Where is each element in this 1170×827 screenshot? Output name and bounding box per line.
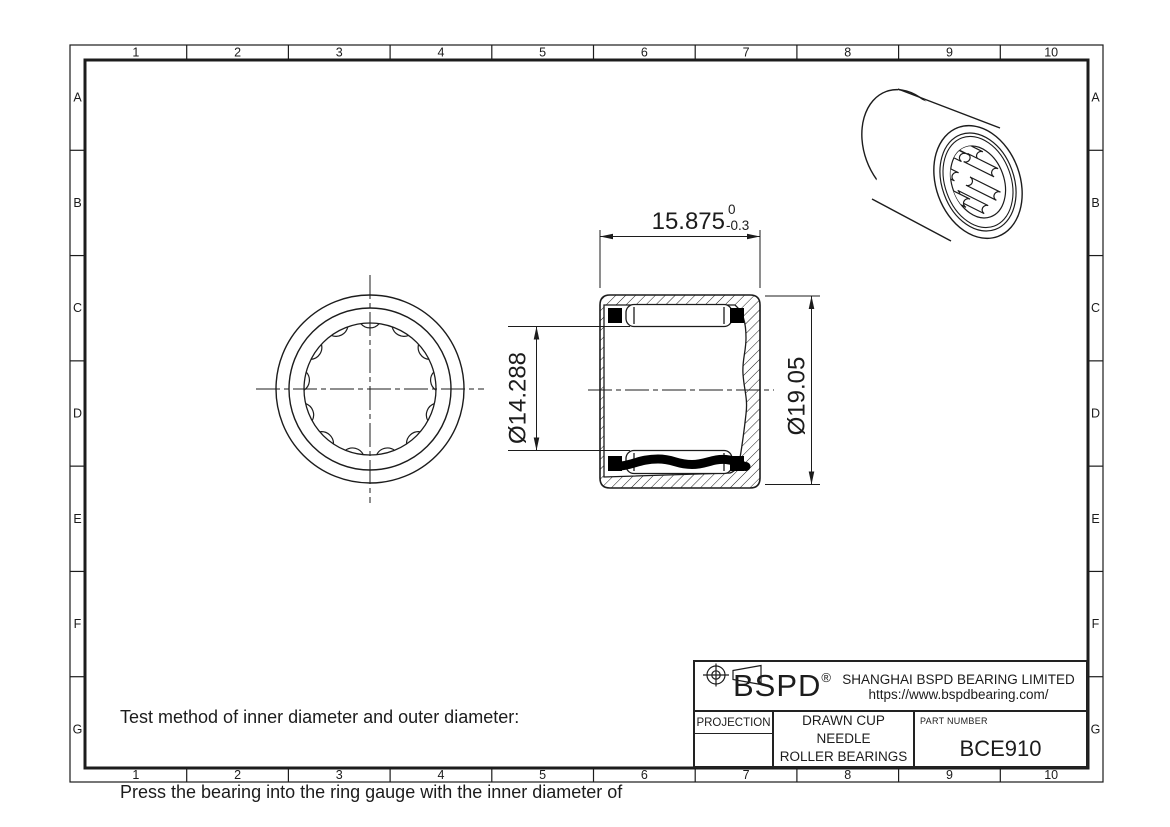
grid-row-label: C (73, 301, 82, 315)
registered-mark: ® (821, 670, 831, 685)
drawing-sheet: 1122334455667788991010AABBCCDDEEFFGG (0, 0, 1170, 827)
company-website: https://www.bspdbearing.com/ (831, 687, 1086, 702)
grid-column-label: 6 (641, 46, 648, 60)
title-block-body: PROJECTION DRAWN CUP NEEDLE ROLLER BEARI… (695, 712, 1086, 766)
grid-row-label: G (1091, 722, 1101, 736)
grid-column-label: 8 (844, 46, 851, 60)
product-title-line1: DRAWN CUP NEEDLE (774, 712, 913, 748)
front-view (256, 275, 484, 503)
test-method-note: Test method of inner diameter and outer … (120, 655, 720, 827)
title-block: BSPD® SHANGHAI BSPD BEARING LIMITED http… (693, 660, 1088, 768)
dimension-width (600, 230, 760, 288)
grid-row-label: D (73, 407, 82, 421)
grid-column-label: 7 (743, 768, 750, 782)
part-number-cell: PART NUMBER BCE910 (915, 712, 1086, 766)
grid-column-label: 9 (946, 768, 953, 782)
grid-column-label: 9 (946, 46, 953, 60)
grid-column-label: 4 (437, 46, 444, 60)
company-info: SHANGHAI BSPD BEARING LIMITED https://ww… (831, 670, 1086, 702)
grid-row-label: F (1092, 617, 1100, 631)
dimension-width-value: 15.875 (652, 208, 725, 235)
grid-column-label: 2 (234, 46, 241, 60)
dimension-width-tol-upper: 0 (728, 202, 736, 217)
product-title-line2: ROLLER BEARINGS (780, 748, 908, 766)
grid-row-label: D (1091, 407, 1100, 421)
dimension-inner-diameter-value: Ø14.288 (504, 352, 531, 444)
product-title-cell: DRAWN CUP NEEDLE ROLLER BEARINGS (774, 712, 915, 766)
grid-row-label: B (1091, 196, 1099, 210)
note-line: Press the bearing into the ring gauge wi… (120, 780, 720, 805)
dimension-outer-diameter-value: Ø19.05 (783, 357, 810, 436)
grid-column-label: 1 (132, 46, 139, 60)
grid-row-label: E (73, 512, 81, 526)
part-number-label: PART NUMBER (920, 716, 988, 726)
note-line: Test method of inner diameter and outer … (120, 705, 720, 730)
needle-roller-top (626, 305, 732, 327)
first-angle-projection-icon (695, 662, 767, 688)
section-view (588, 295, 774, 488)
projection-symbol-area (695, 734, 772, 766)
grid-column-label: 10 (1044, 46, 1058, 60)
part-number-value: BCE910 (915, 736, 1086, 762)
grid-row-label: F (74, 617, 82, 631)
grid-row-label: A (73, 91, 82, 105)
grid-column-label: 7 (743, 46, 750, 60)
isometric-view (847, 77, 1038, 251)
projection-cell: PROJECTION (695, 712, 774, 766)
grid-column-label: 3 (336, 46, 343, 60)
company-name: SHANGHAI BSPD BEARING LIMITED (831, 672, 1086, 687)
grid-row-label: G (73, 722, 83, 736)
grid-column-label: 5 (539, 46, 546, 60)
grid-column-label: 10 (1044, 768, 1058, 782)
grid-column-label: 8 (844, 768, 851, 782)
grid-row-label: A (1091, 91, 1100, 105)
grid-row-label: B (73, 196, 81, 210)
dimension-width-tol-lower: -0.3 (726, 218, 749, 233)
projection-label: PROJECTION (695, 712, 772, 734)
grid-row-label: E (1091, 512, 1099, 526)
grid-row-label: C (1091, 301, 1100, 315)
